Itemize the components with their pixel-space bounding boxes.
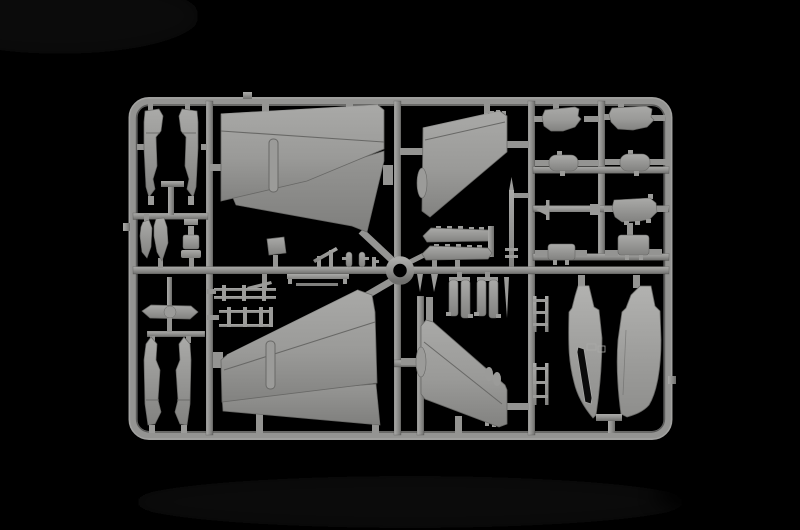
ramp-foot bbox=[446, 312, 451, 316]
wing-slat-upper bbox=[423, 228, 492, 242]
ramp-plate bbox=[477, 280, 486, 316]
fin-bridge bbox=[161, 181, 184, 187]
rail-rung bbox=[227, 307, 231, 327]
runner-grid bbox=[413, 267, 669, 275]
gate-stub bbox=[167, 318, 172, 332]
fin-tab bbox=[181, 425, 187, 433]
strip-shelf bbox=[296, 283, 338, 286]
fin-bridge-stem bbox=[168, 187, 174, 215]
gate-stub bbox=[201, 144, 207, 150]
runner-grid bbox=[394, 101, 401, 257]
nozzle-neck bbox=[188, 226, 194, 235]
fin-tab bbox=[188, 196, 194, 205]
strip-rail bbox=[287, 274, 349, 279]
ramp-plate bbox=[449, 280, 458, 316]
gate-stub bbox=[506, 141, 529, 148]
strip-end bbox=[288, 279, 292, 284]
rail-end bbox=[269, 307, 273, 327]
gate-stub bbox=[649, 159, 666, 165]
nozzle-cap bbox=[184, 219, 198, 225]
ramp-foot bbox=[468, 314, 473, 318]
gate-stub bbox=[656, 206, 668, 212]
pod-tab bbox=[560, 171, 565, 176]
gate-stub bbox=[484, 103, 490, 113]
access-panel-square bbox=[267, 237, 286, 255]
gate-stub bbox=[633, 275, 640, 288]
runner-grid bbox=[147, 331, 205, 337]
gate-stub bbox=[605, 250, 618, 256]
pod-tab bbox=[634, 171, 639, 176]
tailplane-hub bbox=[164, 306, 176, 318]
dart-fin bbox=[546, 200, 550, 220]
strip-end bbox=[343, 279, 347, 284]
ramp-foot bbox=[474, 312, 479, 316]
photo-stage bbox=[0, 0, 800, 530]
gate-stub bbox=[605, 159, 621, 165]
rail-rung bbox=[222, 285, 226, 301]
connector-bar bbox=[596, 414, 622, 421]
dart-body bbox=[549, 207, 591, 212]
bracket-rung bbox=[533, 395, 548, 398]
actuator-bump bbox=[485, 367, 493, 381]
probe-fin bbox=[505, 255, 518, 258]
photo-vignette bbox=[130, 476, 690, 528]
gate-stub bbox=[608, 421, 615, 433]
pod-half-left bbox=[549, 155, 578, 171]
tank-tab bbox=[646, 219, 651, 223]
gate-stub bbox=[577, 160, 599, 166]
box-foot bbox=[553, 260, 557, 265]
model-kit-sprue-photo bbox=[0, 0, 800, 530]
gate-stub bbox=[506, 403, 529, 410]
tailplane-pin bbox=[167, 277, 172, 308]
gate-stub bbox=[455, 260, 460, 267]
rail-rung bbox=[242, 285, 246, 301]
box-foot bbox=[639, 255, 643, 260]
gate-stub bbox=[426, 297, 433, 323]
box-foot bbox=[565, 260, 569, 265]
bracket-rung bbox=[533, 381, 548, 384]
ramp-plate bbox=[461, 280, 470, 318]
intake-cowl-right bbox=[609, 106, 654, 130]
rail-rung bbox=[259, 307, 263, 327]
frame-gate-stub bbox=[123, 223, 130, 231]
rail-rung bbox=[243, 307, 247, 327]
runner-grid bbox=[133, 267, 387, 275]
gate-stub bbox=[262, 103, 269, 112]
bracket-rung bbox=[533, 323, 548, 326]
pod-half-right bbox=[620, 154, 650, 171]
gate-stub bbox=[210, 164, 222, 171]
rail-rung bbox=[262, 285, 266, 301]
gate-stub bbox=[400, 148, 423, 155]
drop-tank-half bbox=[612, 198, 657, 222]
wing-slat-lower bbox=[422, 246, 492, 260]
gate-stub bbox=[513, 193, 529, 198]
gate-stub bbox=[432, 260, 437, 267]
gate-stub bbox=[575, 250, 587, 256]
bracket-rung bbox=[533, 299, 548, 302]
frame-gate-stub bbox=[668, 376, 676, 384]
hub-tab bbox=[342, 257, 347, 260]
bracket-rung bbox=[533, 367, 548, 370]
gate-stub bbox=[137, 144, 144, 150]
nozzle-body bbox=[183, 235, 199, 249]
flap-track-fairing bbox=[269, 139, 278, 192]
gate-stub bbox=[535, 160, 550, 166]
equipment-box-left bbox=[548, 244, 575, 260]
bracket-rung bbox=[533, 311, 548, 314]
fin-tab bbox=[149, 425, 155, 433]
gate-stub bbox=[627, 223, 633, 235]
ramp-foot bbox=[496, 314, 501, 318]
fin-tab bbox=[148, 196, 154, 205]
gate-stub bbox=[189, 258, 194, 267]
gate-stub bbox=[207, 315, 219, 320]
gate-stub bbox=[649, 249, 662, 255]
dart-block bbox=[590, 204, 600, 215]
ramp-plate bbox=[489, 280, 498, 318]
runner-grid bbox=[394, 283, 401, 435]
gate-stub bbox=[256, 414, 263, 433]
pivot-lug bbox=[416, 347, 426, 377]
gate-stub bbox=[383, 165, 393, 185]
gate-stub bbox=[372, 424, 379, 433]
equipment-box-right bbox=[618, 235, 649, 255]
box-foot bbox=[625, 255, 629, 260]
runner-grid bbox=[598, 101, 605, 259]
frame-gate-stub bbox=[243, 92, 252, 99]
gate-stub bbox=[535, 250, 548, 256]
nozzle-base bbox=[181, 250, 201, 258]
tank-tab bbox=[635, 221, 640, 225]
small-bracket-tab bbox=[375, 260, 379, 263]
actuator-bump bbox=[493, 372, 501, 386]
flap-track-fairing bbox=[266, 341, 275, 389]
black-background bbox=[0, 0, 800, 530]
gate-stub bbox=[273, 255, 278, 267]
gate-stub bbox=[584, 116, 599, 122]
probe-fin bbox=[505, 248, 518, 251]
hub-tab bbox=[364, 257, 369, 260]
pivot-lug bbox=[417, 168, 427, 198]
gate-stub bbox=[455, 416, 462, 433]
